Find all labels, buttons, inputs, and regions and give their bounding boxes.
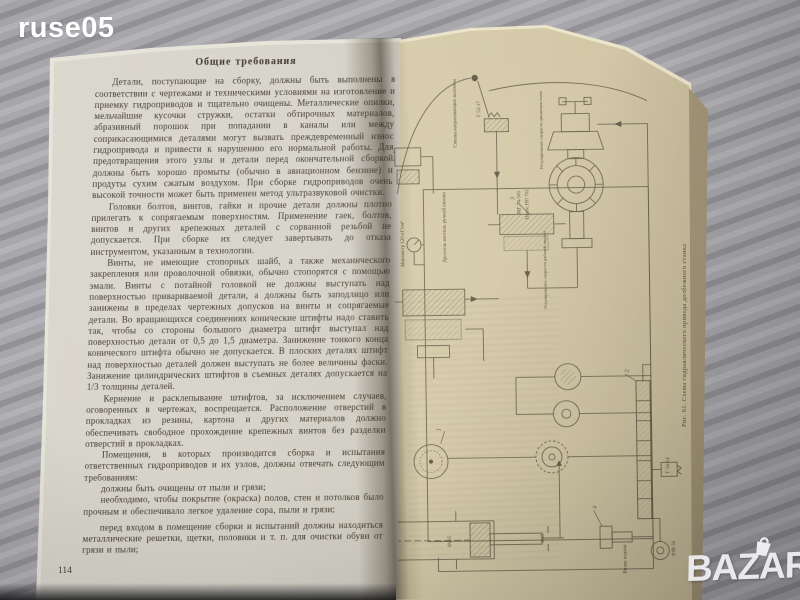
flow-arrow-icon (471, 296, 478, 302)
watermark-bazar: BAZAR (686, 544, 800, 590)
paragraph: Помещения, в которых производится сборка… (84, 447, 385, 484)
callout-number: 1 (437, 428, 443, 431)
paragraph: Головки болтов, винтов, гайки и прочие д… (90, 198, 392, 258)
callout-number: 3 (510, 197, 516, 201)
breather-icon (471, 75, 477, 81)
valve-column-icon (636, 381, 652, 519)
gear-pump-icon (536, 441, 568, 473)
photo-scene: Общие требования Детали, поступающие на … (0, 0, 800, 600)
flow-arrow-icon (614, 121, 621, 127)
diagram-label: Смазка направляющих колонны (453, 79, 459, 148)
diagram-label: Регулирование скорости движения стола (538, 91, 544, 169)
figure-caption: Рис. 61. Схема гидравлического привода д… (681, 168, 692, 502)
book-bottom-shadow (0, 583, 396, 600)
callout-number: 4 (592, 506, 599, 509)
diagram-label: Вилка подачи (623, 544, 628, 574)
paragraph: Кернение и расклепывание штифтов, за иск… (85, 390, 387, 450)
list-item: перед входом в помещение сборки и испыта… (82, 520, 383, 557)
list-item: необходимо, чтобы покрытие (окраска) пол… (83, 492, 384, 518)
piston-icon (470, 523, 490, 557)
diagram-label: Дроссель вентиль ручной смазки (442, 192, 448, 263)
relief-valve-icon (484, 119, 508, 132)
hydraulic-schematic-figure: Смазка направляющих колонны Г 52-17 Мано… (391, 28, 704, 600)
watermark-bazar-text: BAZAR (686, 544, 800, 589)
flow-arrow-icon (524, 271, 530, 278)
fitting-icon (600, 526, 612, 548)
paragraph: Винты, не имеющие стопорных шайб, а такж… (87, 255, 391, 394)
diagram-label: МГ 74-500 (517, 190, 522, 213)
diagram-label: Насос НП 702 (525, 189, 530, 220)
watermark-ruse05: ruse05 (18, 12, 115, 45)
diagram-label: Г 52-17 (477, 100, 482, 116)
callout-number: 2 (625, 369, 631, 372)
page-number: 114 (58, 566, 72, 576)
filter-icon (553, 401, 579, 427)
flange-icon (651, 541, 669, 559)
diagram-label: РЗВ 50 (672, 540, 677, 555)
diagram-label: Г 34-14 (666, 457, 671, 473)
flow-arrow-icon (494, 172, 500, 179)
dimension-label: Ø105 (448, 535, 453, 547)
spring-icon (488, 113, 500, 117)
dimension-label: Ø45 (541, 533, 546, 542)
